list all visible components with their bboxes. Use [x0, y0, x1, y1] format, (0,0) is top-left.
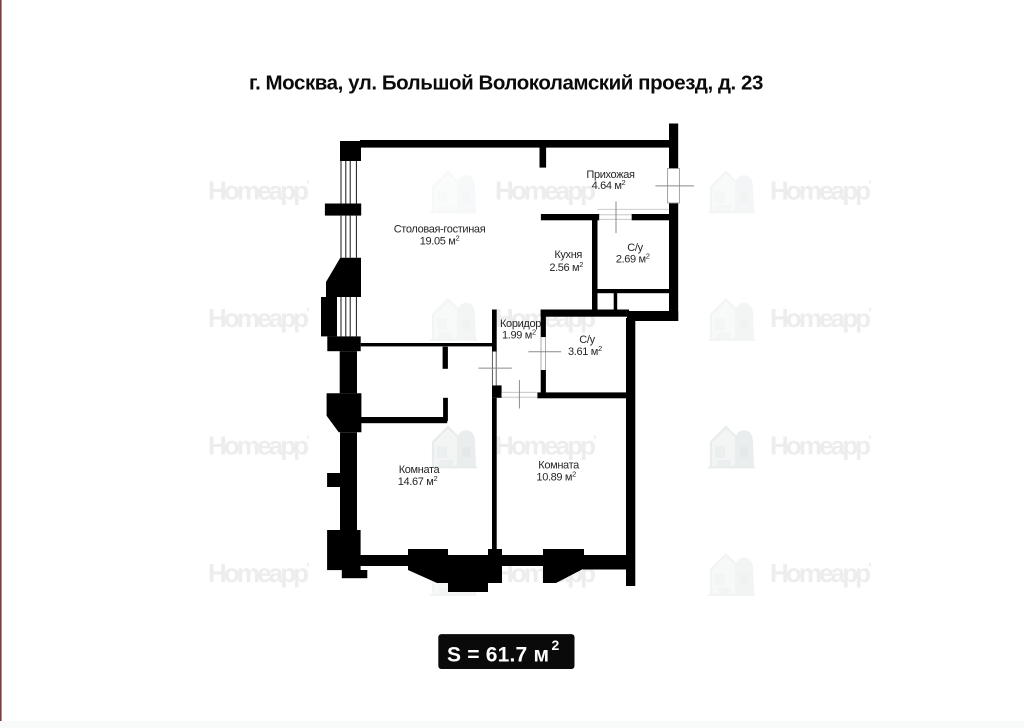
- svg-text:2.69 м2: 2.69 м2: [616, 252, 650, 266]
- svg-text:14.67 м2: 14.67 м2: [398, 474, 438, 488]
- svg-text:Homeapp’: Homeapp’: [770, 176, 871, 206]
- svg-text:Кухня: Кухня: [554, 249, 582, 261]
- svg-text:4.64 м2: 4.64 м2: [592, 178, 626, 192]
- svg-text:Homeapp’: Homeapp’: [208, 176, 309, 206]
- svg-text:С/у: С/у: [627, 242, 643, 254]
- svg-text:Homeapp’: Homeapp’: [770, 431, 871, 461]
- svg-text:2.56 м2: 2.56 м2: [549, 260, 583, 274]
- svg-text:2: 2: [552, 637, 560, 653]
- svg-text:Homeapp’: Homeapp’: [208, 558, 309, 588]
- svg-text:Homeapp’: Homeapp’: [495, 176, 596, 206]
- svg-text:3.61 м2: 3.61 м2: [568, 344, 602, 358]
- svg-text:С/у: С/у: [579, 334, 595, 346]
- svg-text:1.99 м2: 1.99 м2: [502, 328, 536, 342]
- svg-text:г. Москва, ул. Большой Волокол: г. Москва, ул. Большой Волоколамский про…: [249, 72, 763, 95]
- svg-text:Homeapp’: Homeapp’: [770, 303, 871, 333]
- svg-text:10.89 м2: 10.89 м2: [536, 469, 576, 483]
- svg-text:Homeapp’: Homeapp’: [208, 303, 309, 333]
- svg-text:Столовая-гостиная: Столовая-гостиная: [394, 224, 486, 236]
- svg-text:Homeapp’: Homeapp’: [208, 431, 309, 461]
- svg-text:S = 61.7 м: S = 61.7 м: [447, 644, 549, 667]
- svg-text:Homeapp’: Homeapp’: [770, 558, 871, 588]
- svg-text:19.05 м2: 19.05 м2: [420, 233, 460, 247]
- svg-text:Homeapp’: Homeapp’: [495, 431, 596, 461]
